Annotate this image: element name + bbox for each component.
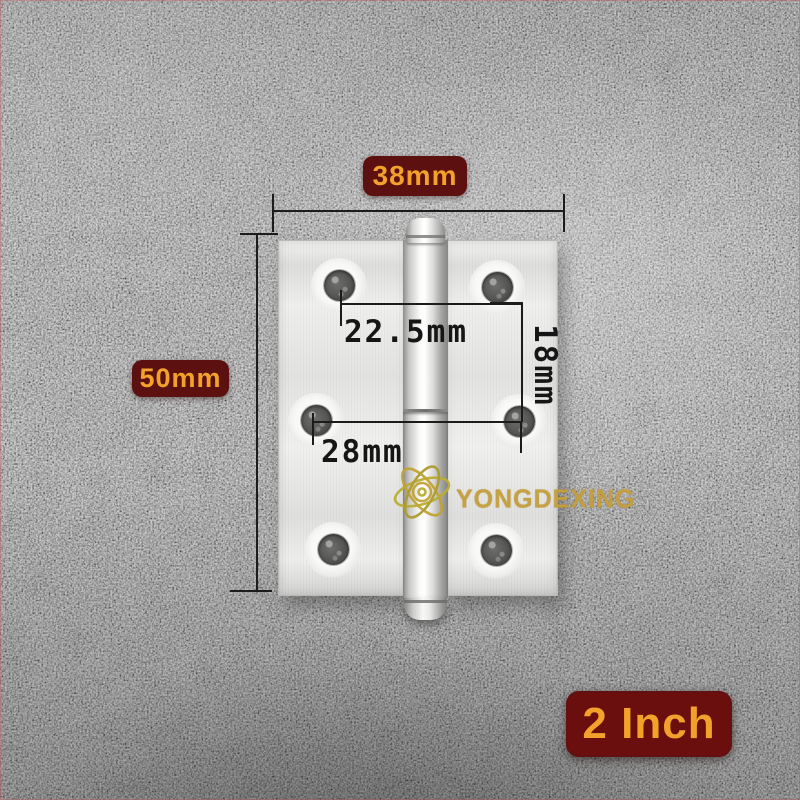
- screw-hole-pit: [318, 534, 349, 565]
- height-label-text: 50mm: [139, 363, 221, 394]
- width-dimension-line: [273, 210, 565, 212]
- screw-hole-top-right: [469, 260, 525, 316]
- width-dimension-tick-left: [272, 194, 274, 232]
- screw-hole-bottom-left: [305, 522, 361, 578]
- height-dimension-tick-bottom: [230, 590, 272, 592]
- vertical-hole-spacing-label: 18mm: [527, 324, 563, 407]
- atom-icon: [390, 458, 454, 526]
- screw-hole-top-left: [311, 258, 367, 314]
- hinge-pin-top-cap: [406, 218, 445, 243]
- width-label-chip: 38mm: [363, 156, 467, 196]
- top-hole-spacing-label: 22.5mm: [344, 314, 468, 350]
- brand-name-text: YONGDEXING: [456, 484, 635, 514]
- top-hole-spacing-tick-left: [340, 290, 342, 326]
- vertical-hole-spacing-tick-top: [490, 302, 523, 304]
- width-dimension-tick-right: [563, 194, 565, 232]
- size-badge-text: 2 Inch: [582, 699, 715, 749]
- height-dimension-tick-top: [240, 233, 278, 235]
- hinge-knuckle-seam: [403, 409, 448, 412]
- height-label-chip: 50mm: [132, 360, 229, 397]
- height-dimension-line: [256, 234, 258, 592]
- screw-hole-pit: [481, 535, 512, 566]
- hinge-pin-bottom-groove: [404, 600, 447, 603]
- middle-hole-spacing-tick-right: [520, 421, 522, 453]
- width-label-text: 38mm: [373, 160, 458, 192]
- vertical-hole-spacing-line: [521, 303, 523, 422]
- hinge-pin-top-groove: [406, 235, 445, 238]
- middle-hole-spacing-line: [313, 421, 521, 423]
- size-badge: 2 Inch: [566, 691, 732, 757]
- middle-hole-spacing-tick-left: [312, 413, 314, 445]
- product-photo: 22.5mm 18mm 28mm 38mm 50mm 2 Inch YONGDE…: [0, 0, 800, 800]
- screw-hole-bottom-right: [468, 523, 524, 579]
- screw-hole-pit: [482, 272, 513, 303]
- brand-watermark: YONGDEXING: [390, 458, 635, 526]
